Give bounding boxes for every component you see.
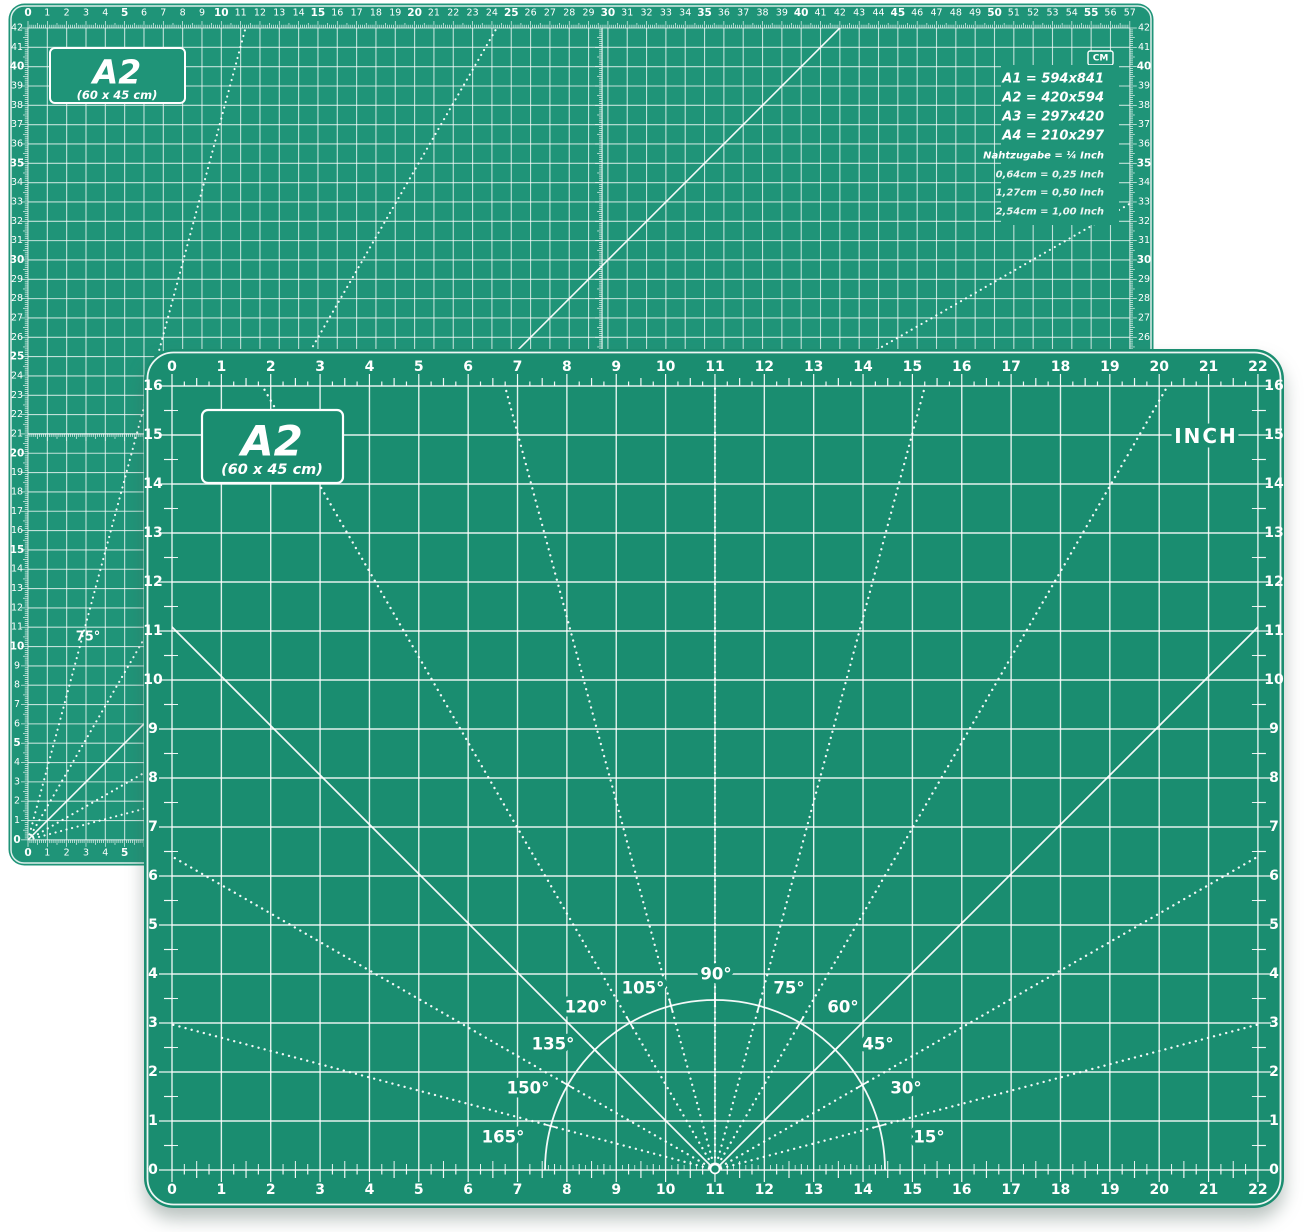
inch-right-ruler-number: 15 [1264,427,1283,443]
cm-left-ruler-number: 38 [11,100,23,111]
cm-right-ruler-number: 29 [1138,274,1150,285]
cm-top-ruler-number: 32 [641,8,653,19]
cm-left-ruler-number: 1 [14,815,20,826]
cm-bottom-ruler-number: 0 [24,847,31,859]
cm-top-ruler-number: 5 [121,7,128,19]
cm-left-ruler-number: 35 [10,157,25,169]
cm-top-ruler-number: 17 [351,8,363,19]
inch-unit-text: INCH [1174,424,1238,448]
cm-top-ruler-number: 37 [737,8,749,19]
cm-left-ruler-number: 7 [14,699,20,710]
paper-size-line: A1 = 594x841 [1001,72,1104,87]
cm-left-ruler-number: 24 [11,370,23,381]
cm-unit-text: CM [1093,54,1109,64]
cm-top-ruler-number: 29 [583,8,595,19]
cm-top-ruler-number: 31 [621,8,633,19]
inch-bottom-ruler-number: 14 [853,1182,873,1198]
angle-label: 45° [862,1035,893,1054]
inch-top-ruler-number: 12 [755,359,774,375]
cm-top-ruler-number: 52 [1027,8,1039,19]
inch-left-ruler-number: 9 [148,721,158,737]
inch-right-ruler-number: 1 [1269,1113,1279,1129]
inch-bottom-ruler-number: 6 [463,1182,473,1198]
inch-left-ruler-number: 16 [143,378,162,394]
cm-right-ruler-number: 32 [1138,216,1150,227]
cm-top-ruler-number: 35 [697,7,712,19]
inch-top-ruler-number: 19 [1100,359,1119,375]
inch-right-ruler-number: 12 [1264,574,1283,590]
cm-top-ruler-number: 39 [776,8,788,19]
cm-top-ruler-number: 15 [311,7,326,19]
cm-top-ruler-number: 36 [718,8,730,19]
cutting-mat-inch-side: 90°105°75°120°60°135°45°150°30°165°15°A2… [143,348,1285,1213]
inch-top-ruler-number: 6 [463,359,473,375]
inch-left-ruler-number: 2 [148,1064,158,1080]
cm-size-title: A2 [90,53,142,92]
cm-right-ruler-number: 42 [1138,23,1150,34]
cm-left-ruler-number: 15 [10,544,25,556]
inch-right-ruler-number: 6 [1269,868,1279,884]
inch-bottom-ruler-number: 20 [1149,1182,1169,1198]
cm-top-ruler-number: 53 [1046,8,1058,19]
inch-size-subtitle: (60 x 45 cm) [221,462,323,478]
angle-label: 75° [773,979,804,998]
cm-top-ruler-number: 23 [467,8,479,19]
cm-top-ruler-number: 27 [544,8,556,19]
inch-bottom-ruler-number: 0 [167,1182,177,1198]
cm-top-ruler-number: 54 [1066,8,1078,19]
cm-left-ruler-number: 25 [10,351,25,363]
inch-right-ruler-number: 0 [1269,1162,1279,1178]
cm-left-ruler-number: 20 [10,447,25,459]
cm-left-ruler-number: 36 [11,138,23,149]
inch-left-ruler-number: 3 [148,1015,158,1031]
protractor-center-point [711,1165,720,1174]
conversion-line: 2,54cm = 1,00 Inch [996,207,1104,218]
cm-top-ruler-number: 34 [679,8,691,19]
inch-left-ruler-number: 12 [143,574,162,590]
inch-right-ruler-number: 9 [1269,721,1279,737]
cm-unit-label: CM [1088,51,1113,65]
inch-bottom-ruler-number: 18 [1051,1182,1070,1198]
cm-right-ruler-number: 39 [1138,80,1150,91]
cm-left-ruler-number: 10 [10,641,25,653]
cm-bottom-ruler-number: 4 [102,848,108,859]
cm-left-ruler-number: 13 [11,583,23,594]
cm-top-ruler-number: 4 [102,8,108,19]
cm-left-ruler-number: 42 [11,23,23,34]
cm-right-ruler-number: 27 [1138,312,1150,323]
cm-top-ruler-number: 46 [911,8,923,19]
cm-left-ruler-number: 22 [11,409,23,420]
inch-size-label: A2(60 x 45 cm) [202,410,343,483]
inch-right-ruler-number: 5 [1269,917,1279,933]
inch-unit-label: INCH [1174,424,1238,448]
cm-top-ruler-number: 11 [235,8,247,19]
cm-right-ruler-number: 41 [1138,42,1150,53]
cm-left-ruler-number: 4 [14,757,20,768]
cm-bottom-ruler-number: 3 [83,848,89,859]
inch-left-ruler-number: 14 [143,476,163,492]
cm-top-ruler-number: 45 [891,7,906,19]
inch-top-ruler-number: 7 [513,359,523,375]
cm-top-ruler-number: 30 [601,7,616,19]
cm-left-ruler-number: 0 [13,834,20,846]
cm-top-ruler-number: 25 [504,7,519,19]
cm-right-ruler-number: 38 [1138,100,1150,111]
conversion-line: 0,64cm = 0,25 Inch [996,170,1104,181]
inch-bottom-ruler-number: 8 [562,1182,572,1198]
cm-top-ruler-number: 44 [872,8,884,19]
angle-75-label: 75° [76,630,101,645]
cm-left-ruler-number: 27 [11,312,23,323]
cm-top-ruler-number: 10 [214,7,229,19]
angle-label: 60° [827,998,858,1017]
cm-left-ruler-number: 9 [14,660,20,671]
cm-left-ruler-number: 30 [10,254,25,266]
cm-right-ruler-number: 40 [1137,61,1152,73]
cm-bottom-ruler-number: 1 [44,848,50,859]
cm-top-ruler-number: 48 [950,8,962,19]
inch-left-ruler-number: 15 [143,427,162,443]
cm-top-ruler-number: 40 [794,7,809,19]
cm-left-ruler-number: 2 [14,796,20,807]
inch-right-ruler-number: 8 [1269,770,1279,786]
cm-info-backplate [1001,65,1119,225]
inch-top-ruler-number: 0 [167,359,177,375]
cm-left-ruler-number: 17 [11,506,23,517]
cm-right-ruler-number: 28 [1138,293,1150,304]
inch-top-ruler-number: 20 [1149,359,1169,375]
inch-bottom-ruler-number: 10 [656,1182,676,1198]
angle-label: 30° [890,1079,921,1098]
inch-right-ruler-number: 3 [1269,1015,1279,1031]
inch-size-title: A2 [238,417,303,466]
angle-label: 150° [507,1079,550,1098]
inch-top-ruler-number: 11 [705,359,724,375]
cm-right-ruler-number: 36 [1138,138,1150,149]
cm-right-ruler-number: 31 [1138,235,1150,246]
seam-allowance-line: Nahtzugabe = ¼ Inch [983,150,1104,162]
angle-label: 165° [482,1128,525,1147]
cm-top-ruler-number: 1 [44,8,50,19]
cm-left-ruler-number: 32 [11,216,23,227]
angle-label: 135° [532,1035,575,1054]
cm-top-ruler-number: 9 [199,8,205,19]
inch-top-ruler-number: 1 [216,359,226,375]
inch-bottom-ruler-number: 11 [705,1182,724,1198]
inch-bottom-ruler-number: 17 [1001,1182,1020,1198]
cm-top-ruler-number: 0 [24,7,31,19]
cm-top-ruler-number: 21 [428,8,440,19]
cm-bottom-ruler-number: 5 [121,847,128,859]
cm-left-ruler-number: 6 [14,718,20,729]
cm-top-ruler-number: 13 [273,8,285,19]
cm-left-ruler-number: 29 [11,274,23,285]
cutting-mat-product-image: 75°A2(60 x 45 cm)CMA1 = 594x841A2 = 420x… [0,0,1310,1232]
cm-top-ruler-number: 24 [486,8,498,19]
cm-top-ruler-number: 6 [141,8,147,19]
inch-mat-graphic: 90°105°75°120°60°135°45°150°30°165°15°A2… [143,348,1285,1209]
inch-bottom-ruler-number: 3 [315,1182,325,1198]
inch-bottom-ruler-number: 5 [414,1182,424,1198]
cm-top-ruler-number: 33 [660,8,672,19]
cm-left-ruler-number: 3 [14,776,20,787]
inch-right-ruler-number: 14 [1264,476,1284,492]
inch-bottom-ruler-number: 1 [216,1182,226,1198]
cm-left-ruler-number: 14 [11,564,23,575]
inch-bottom-ruler-number: 12 [755,1182,774,1198]
cm-size-subtitle: (60 x 45 cm) [77,88,158,102]
cm-left-ruler-number: 33 [11,196,23,207]
cm-top-ruler-number: 42 [834,8,846,19]
cm-right-ruler-number: 33 [1138,196,1150,207]
inch-top-ruler-number: 14 [853,359,873,375]
cm-right-ruler-number: 37 [1138,119,1150,130]
paper-size-line: A3 = 297x420 [1001,110,1104,125]
inch-left-ruler-number: 5 [148,917,158,933]
cm-left-ruler-number: 41 [11,42,23,53]
inch-right-ruler-number: 13 [1264,525,1283,541]
cm-top-ruler-number: 14 [293,8,305,19]
inch-left-ruler-number: 7 [148,819,158,835]
cm-top-ruler-number: 7 [160,8,166,19]
cm-top-ruler-number: 19 [389,8,401,19]
cm-top-ruler-number: 47 [930,8,942,19]
paper-size-line: A4 = 210x297 [1001,129,1105,144]
cm-left-ruler-number: 18 [11,486,23,497]
inch-bottom-ruler-number: 16 [952,1182,971,1198]
cm-top-ruler-number: 20 [407,7,422,19]
angle-label: 90° [700,965,731,984]
cm-right-ruler-number: 30 [1137,254,1152,266]
inch-bottom-ruler-number: 21 [1199,1182,1218,1198]
inch-bottom-ruler-number: 22 [1248,1182,1267,1198]
cm-left-ruler-number: 5 [13,737,20,749]
cm-top-ruler-number: 51 [1008,8,1020,19]
inch-top-ruler-number: 2 [266,359,276,375]
inch-bottom-ruler-number: 15 [903,1182,922,1198]
inch-top-ruler-number: 9 [611,359,621,375]
inch-right-ruler-number: 10 [1264,672,1284,688]
cm-left-ruler-number: 39 [11,80,23,91]
inch-bottom-ruler-number: 7 [513,1182,523,1198]
angle-label: 105° [622,979,665,998]
cm-top-ruler-number: 55 [1084,7,1099,19]
inch-top-ruler-number: 21 [1199,359,1218,375]
cm-left-ruler-number: 19 [11,467,23,478]
inch-bottom-ruler-number: 2 [266,1182,276,1198]
inch-right-ruler-number: 16 [1264,378,1283,394]
cm-left-ruler-number: 12 [11,602,23,613]
inch-left-ruler-number: 1 [148,1113,158,1129]
cm-paper-size-info: A1 = 594x841A2 = 420x594A3 = 297x420A4 =… [983,65,1119,225]
inch-right-ruler-number: 2 [1269,1064,1279,1080]
angle-label: 15° [913,1128,944,1147]
cm-size-label: A2(60 x 45 cm) [50,48,185,103]
cm-bottom-ruler-number: 2 [64,848,70,859]
cm-left-ruler-number: 21 [11,428,23,439]
inch-top-ruler-number: 13 [804,359,823,375]
inch-bottom-ruler-number: 19 [1100,1182,1119,1198]
cm-top-ruler-number: 18 [370,8,382,19]
inch-top-ruler-number: 16 [952,359,971,375]
inch-left-ruler-number: 4 [148,966,158,982]
inch-top-ruler-number: 8 [562,359,572,375]
cm-top-ruler-number: 28 [563,8,575,19]
inch-top-ruler-number: 18 [1051,359,1070,375]
cm-top-ruler-number: 56 [1104,8,1116,19]
cm-top-ruler-number: 41 [814,8,826,19]
inch-top-ruler-number: 4 [365,359,375,375]
cm-top-ruler-number: 16 [331,8,343,19]
inch-left-ruler-number: 11 [143,623,162,639]
inch-left-ruler-number: 0 [148,1162,158,1178]
cm-left-ruler-number: 16 [11,525,23,536]
cm-left-ruler-number: 8 [14,680,20,691]
cm-top-ruler-number: 26 [525,8,537,19]
cm-left-ruler-number: 26 [11,332,23,343]
angle-label: 120° [565,998,608,1017]
cm-top-ruler-number: 57 [1124,8,1136,19]
inch-left-ruler-number: 8 [148,770,158,786]
cm-right-ruler-number: 35 [1137,157,1152,169]
inch-bottom-ruler-number: 13 [804,1182,823,1198]
cm-angle-label: 75° [76,630,101,645]
cm-top-ruler-number: 12 [254,8,266,19]
cm-left-ruler-number: 34 [11,177,23,188]
cm-left-ruler-number: 31 [11,235,23,246]
cm-top-ruler-number: 38 [756,8,768,19]
inch-top-ruler-number: 5 [414,359,424,375]
inch-right-ruler-number: 4 [1269,966,1279,982]
inch-top-ruler-number: 15 [903,359,922,375]
cm-left-ruler-number: 23 [11,390,23,401]
cm-left-ruler-number: 28 [11,293,23,304]
cm-right-ruler-number: 34 [1138,177,1150,188]
cm-top-ruler-number: 3 [83,8,89,19]
cm-top-ruler-number: 22 [447,8,459,19]
cm-top-ruler-number: 43 [853,8,865,19]
cm-top-ruler-number: 8 [180,8,186,19]
conversion-line: 1,27cm = 0,50 Inch [996,188,1104,199]
cm-top-ruler-number: 2 [64,8,70,19]
inch-right-ruler-number: 7 [1269,819,1279,835]
inch-right-ruler-number: 11 [1264,623,1283,639]
inch-left-ruler-number: 6 [148,868,158,884]
cm-left-ruler-number: 37 [11,119,23,130]
inch-left-ruler-number: 10 [143,672,163,688]
cm-left-ruler-number: 11 [11,622,23,633]
inch-top-ruler-number: 17 [1001,359,1020,375]
inch-top-ruler-number: 22 [1248,359,1267,375]
cm-left-ruler-number: 40 [10,61,25,73]
paper-size-line: A2 = 420x594 [1001,91,1104,106]
inch-bottom-ruler-number: 4 [365,1182,375,1198]
inch-top-ruler-number: 10 [656,359,676,375]
inch-bottom-ruler-number: 9 [611,1182,621,1198]
cm-top-ruler-number: 49 [969,8,981,19]
inch-top-ruler-number: 3 [315,359,325,375]
inch-left-ruler-number: 13 [143,525,162,541]
cm-right-ruler-number: 26 [1138,332,1150,343]
cm-top-ruler-number: 50 [987,7,1002,19]
